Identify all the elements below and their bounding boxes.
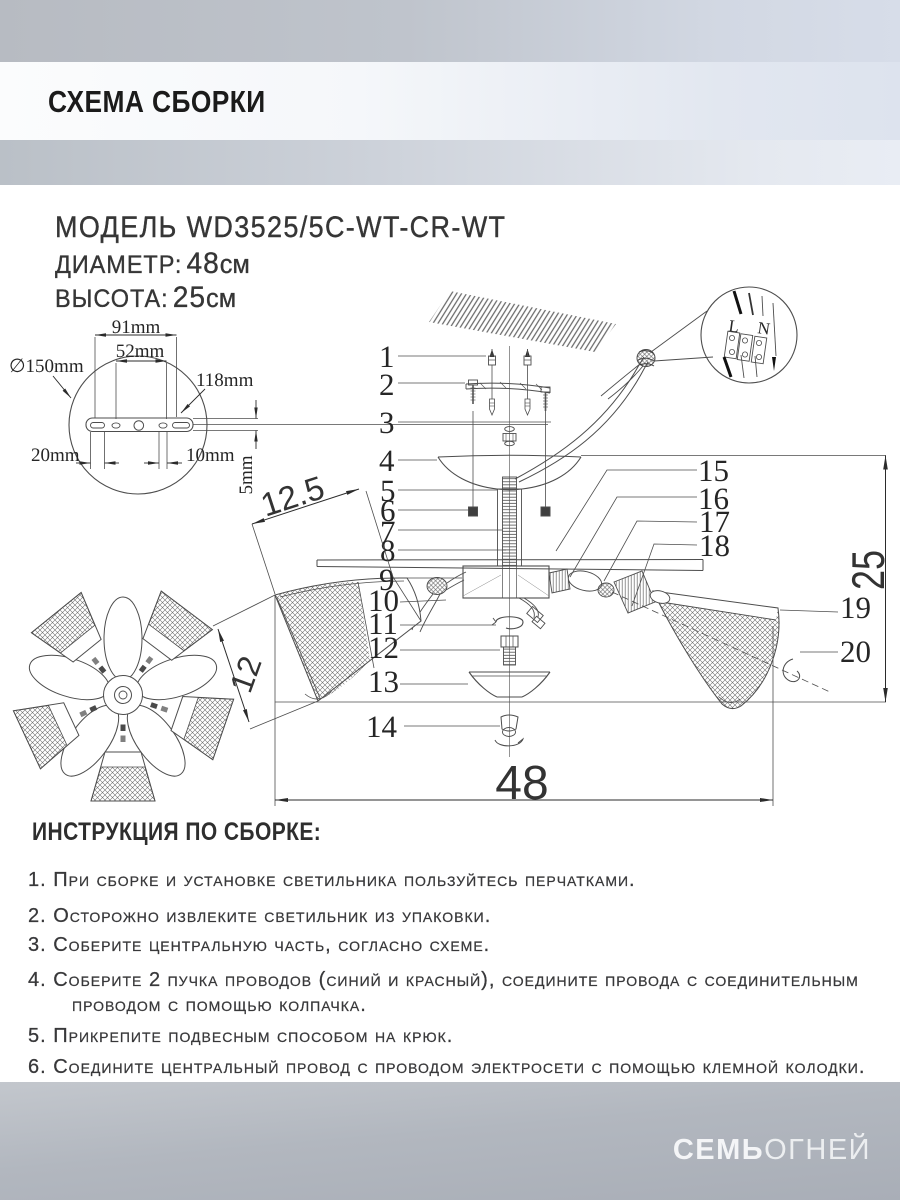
svg-text:48: 48 [495,757,548,810]
svg-text:14: 14 [366,709,398,744]
svg-text:13: 13 [368,664,399,699]
svg-text:19: 19 [840,590,871,625]
svg-text:25: 25 [842,550,894,590]
svg-text:N: N [756,318,771,339]
svg-text:∅150mm: ∅150mm [9,356,84,377]
svg-text:12: 12 [223,651,269,697]
svg-text:91mm: 91mm [112,317,161,338]
svg-text:20mm: 20mm [31,445,80,466]
svg-text:20: 20 [840,634,871,669]
svg-text:12: 12 [368,630,399,665]
svg-text:18: 18 [699,528,730,563]
svg-text:12.5: 12.5 [256,469,329,524]
svg-text:5mm: 5mm [236,455,257,494]
svg-text:118mm: 118mm [196,370,254,391]
svg-text:2: 2 [379,367,395,402]
svg-text:L: L [727,316,740,336]
svg-text:3: 3 [379,405,395,440]
svg-text:10mm: 10mm [186,445,235,466]
svg-text:52mm: 52mm [116,341,165,362]
